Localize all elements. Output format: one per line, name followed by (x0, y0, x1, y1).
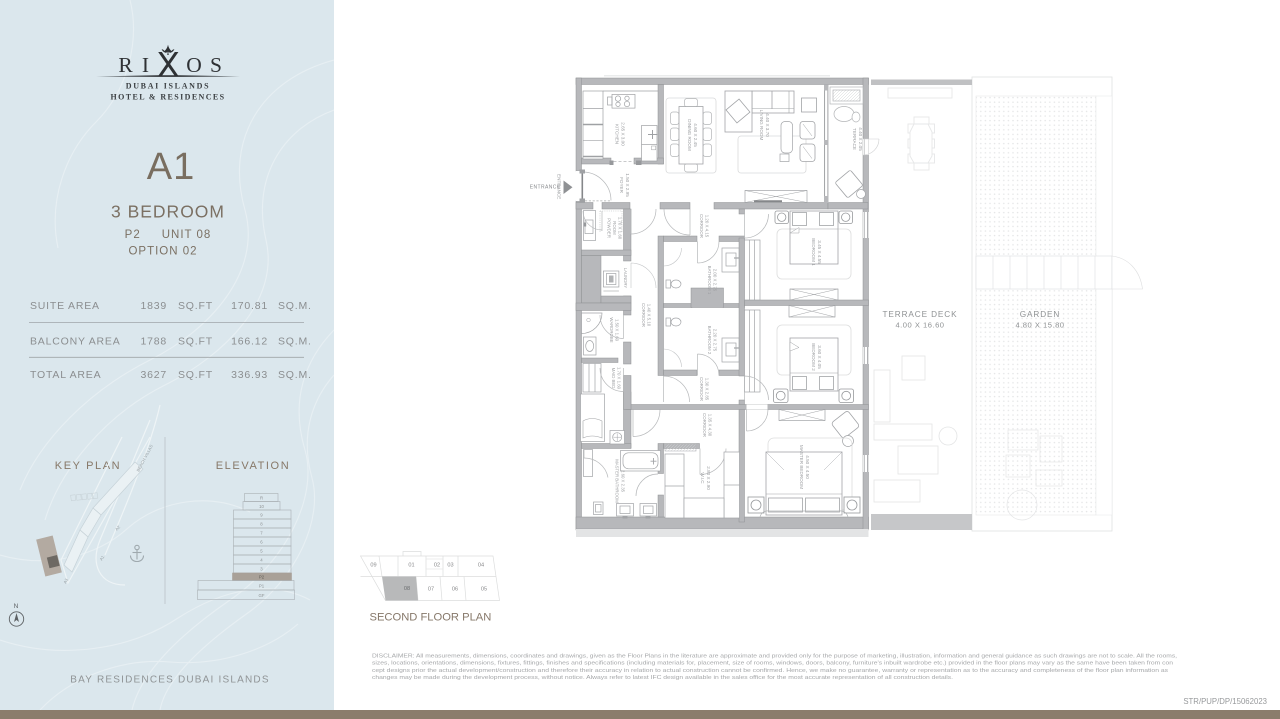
svg-text:2.20 X 2.75: 2.20 X 2.75 (713, 329, 718, 352)
svg-text:BEDROOM 2: BEDROOM 2 (811, 343, 816, 371)
svg-text:CORRIDOR: CORRIDOR (699, 214, 704, 238)
svg-text:MASTER BEDROOM: MASTER BEDROOM (799, 445, 804, 489)
svg-text:3.45 X 4.55: 3.45 X 4.55 (817, 240, 822, 264)
svg-text:3.60 X 4.05: 3.60 X 4.05 (817, 345, 822, 369)
svg-text:LAUNDRY: LAUNDRY (623, 268, 628, 289)
svg-text:1.35 X 4.30: 1.35 X 4.30 (708, 414, 713, 437)
svg-text:sizes, locations, orientations: sizes, locations, orientations, dimensio… (372, 661, 1173, 667)
svg-text:4.60 X 2.45: 4.60 X 2.45 (693, 123, 698, 147)
svg-text:BATHROOM 2: BATHROOM 2 (707, 326, 712, 355)
svg-text:2.65 X 3.00: 2.65 X 3.00 (621, 122, 626, 146)
svg-text:DINING ROOM: DINING ROOM (687, 119, 692, 151)
svg-text:ENTRANCE: ENTRANCE (530, 184, 561, 190)
svg-text:07: 07 (428, 587, 434, 593)
svg-text:1.30 X 2.85: 1.30 X 2.85 (705, 378, 710, 401)
svg-text:TERRACE: TERRACE (852, 128, 857, 150)
svg-text:01: 01 (408, 563, 414, 569)
svg-text:1.50 X 2.95: 1.50 X 2.95 (625, 173, 630, 197)
svg-text:WARDROBE: WARDROBE (609, 317, 614, 342)
svg-text:GARDEN: GARDEN (1020, 310, 1060, 319)
svg-text:1.70 X 1.60: 1.70 X 1.60 (618, 217, 623, 240)
svg-text:09: 09 (370, 563, 376, 569)
svg-text:08: 08 (404, 586, 410, 592)
svg-text:4.40 X 3.70: 4.40 X 3.70 (765, 113, 770, 137)
svg-text:POWDER: POWDER (607, 218, 612, 238)
svg-text:06: 06 (452, 587, 458, 593)
svg-text:02: 02 (434, 563, 440, 569)
svg-text:1.20 X 4.15: 1.20 X 4.15 (705, 215, 710, 238)
svg-text:1.70 X 1.60: 1.70 X 1.60 (617, 367, 622, 390)
svg-text:4.40 X 2.05: 4.40 X 2.05 (858, 127, 863, 151)
svg-text:LIVING ROOM: LIVING ROOM (759, 110, 764, 141)
svg-text:03: 03 (447, 563, 453, 569)
svg-text:1.40 X 5.10: 1.40 X 5.10 (647, 304, 652, 327)
svg-text:4.00 X 16.60: 4.00 X 16.60 (895, 321, 944, 330)
svg-text:ENTRANCE: ENTRANCE (557, 174, 562, 199)
svg-text:changes may be made during the: changes may be made during the developme… (372, 675, 954, 681)
svg-text:2.80 X 2.90: 2.80 X 2.90 (706, 466, 711, 490)
svg-text:05: 05 (481, 587, 487, 593)
svg-text:MAID BED: MAID BED (611, 368, 616, 389)
svg-text:DISCLAIMER: All measurements,: DISCLAIMER: All measurements, dimensions… (372, 654, 1178, 660)
svg-text:4.80 X 15.80: 4.80 X 15.80 (1015, 321, 1064, 330)
svg-text:KITCHEN: KITCHEN (615, 124, 620, 144)
svg-text:MASTER BATHROOM: MASTER BATHROOM (615, 459, 620, 503)
svg-text:FOYER: FOYER (619, 177, 624, 194)
svg-text:2.00 X 2.75: 2.00 X 2.75 (713, 269, 718, 292)
svg-text:1.50 X 1.60: 1.50 X 1.60 (615, 319, 620, 342)
svg-text:W.I.C: W.I.C (700, 472, 705, 484)
svg-text:STR/PUP/DP/15062023: STR/PUP/DP/15062023 (1183, 697, 1267, 706)
svg-text:SECOND FLOOR PLAN: SECOND FLOOR PLAN (370, 612, 492, 624)
svg-text:BATHROOM 1: BATHROOM 1 (707, 266, 712, 295)
svg-text:4.50 X 4.50: 4.50 X 4.50 (805, 455, 810, 479)
svg-text:cept designs prior the actual: cept designs prior the actual developmen… (372, 668, 1168, 674)
svg-text:ROOM: ROOM (612, 221, 617, 235)
svg-text:04: 04 (478, 563, 484, 569)
svg-text:TERRACE DECK: TERRACE DECK (883, 310, 958, 319)
svg-text:CORRIDOR: CORRIDOR (641, 303, 646, 327)
svg-text:BEDROOM 1: BEDROOM 1 (811, 238, 816, 266)
svg-text:2.60 X 2.35: 2.60 X 2.35 (621, 470, 626, 493)
svg-text:CORRIDOR: CORRIDOR (699, 377, 704, 401)
svg-text:CORRIDOR: CORRIDOR (702, 413, 707, 437)
